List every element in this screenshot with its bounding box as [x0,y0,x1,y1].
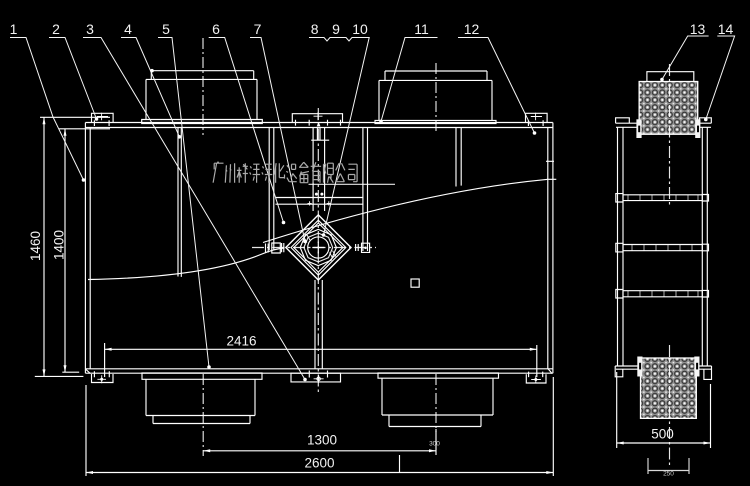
svg-text:7: 7 [254,21,262,37]
svg-text:2: 2 [52,21,60,37]
svg-text:8: 8 [311,21,319,37]
svg-text:6: 6 [212,21,220,37]
svg-text:3: 3 [86,21,94,37]
svg-text:5: 5 [162,21,170,37]
svg-text:4: 4 [124,21,132,37]
svg-text:2416: 2416 [226,334,256,349]
svg-text:11: 11 [414,21,429,37]
svg-text:1: 1 [10,21,18,37]
svg-text:300: 300 [429,441,440,448]
svg-text:1300: 1300 [307,433,337,448]
svg-text:500: 500 [651,427,674,442]
svg-text:14: 14 [718,21,734,37]
svg-text:9: 9 [332,21,340,37]
svg-text:1400: 1400 [52,230,67,260]
svg-text:12: 12 [464,21,480,37]
svg-text:13: 13 [690,21,706,37]
svg-text:2600: 2600 [304,456,334,471]
svg-text:250: 250 [663,471,674,478]
svg-text:10: 10 [352,21,368,37]
svg-text:1460: 1460 [28,231,43,261]
